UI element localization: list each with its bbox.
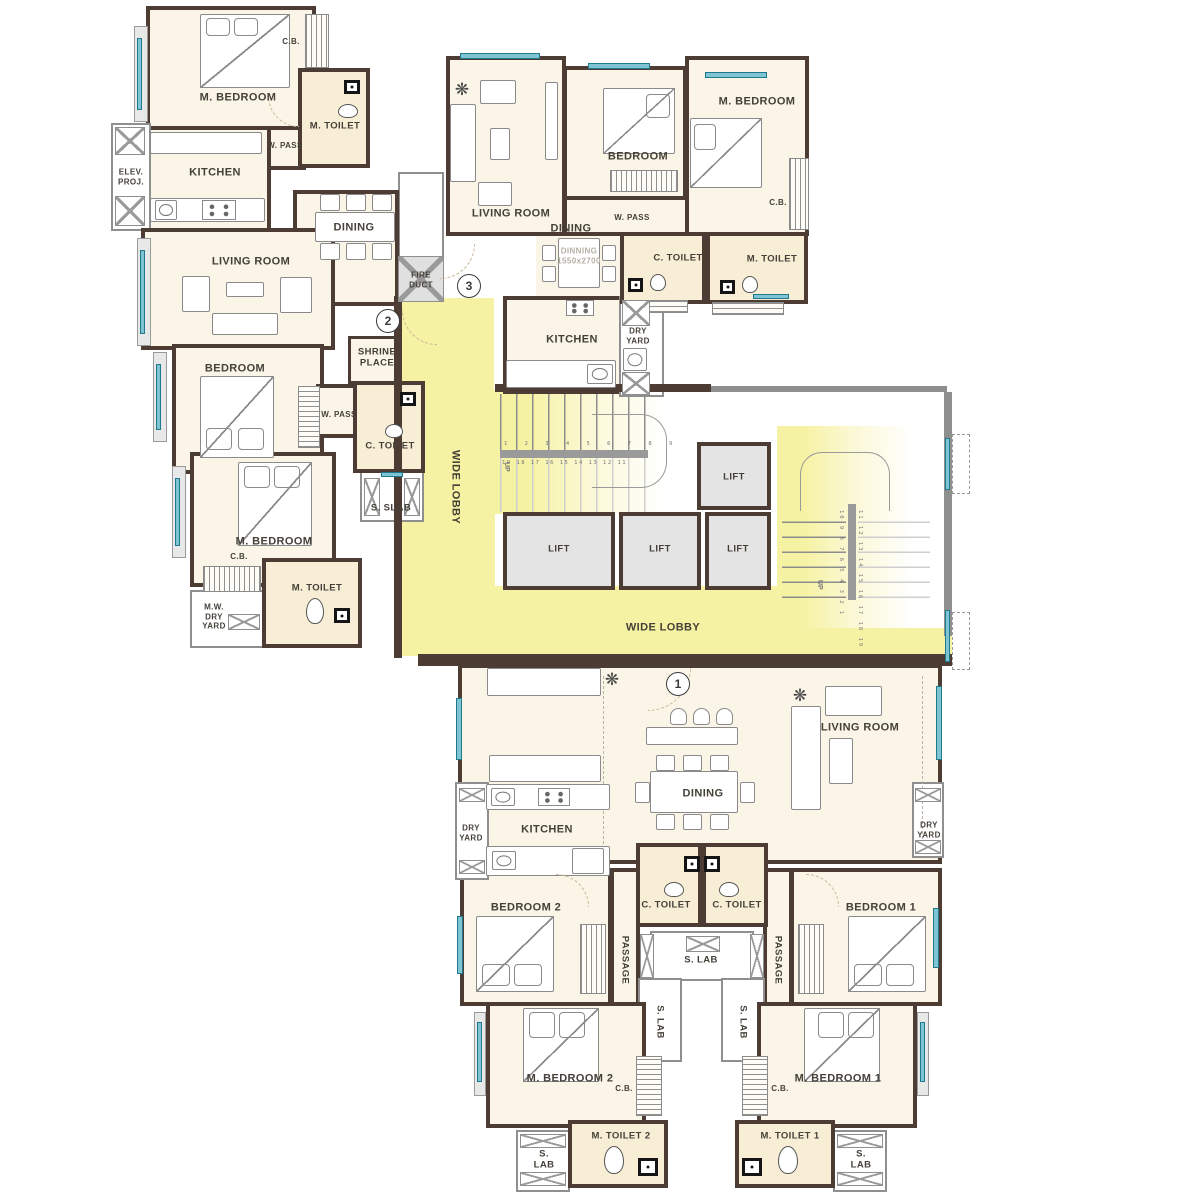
- u3-master-toilet-label: M. TOILET: [747, 253, 797, 264]
- stair-window-top: [945, 438, 950, 490]
- u1-window-right-1: [936, 686, 942, 760]
- u3-tv-unit: [545, 82, 558, 160]
- u1-dryyard-r-hatch-top: [915, 788, 941, 802]
- u2-dining-chair-1: [320, 194, 340, 211]
- entry-marker-3: 3: [457, 274, 481, 298]
- u1-mtoilet1-basin-icon: [742, 1158, 762, 1176]
- u3-stove-icon: [566, 300, 594, 316]
- lift-2-label: LIFT: [649, 543, 671, 554]
- u3-armchair-top: [480, 80, 516, 104]
- u1-bed-1-line: [848, 916, 926, 992]
- u1-mbed1-window: [920, 1022, 925, 1082]
- u1-sofa-1: [487, 668, 601, 696]
- u2-bed-master-line: [200, 14, 290, 88]
- u1-slab-center-hatch-l: [640, 934, 654, 978]
- lift-top-right-label: LIFT: [723, 471, 745, 482]
- u2-elev-proj-label: ELEV. PROJ.: [118, 167, 144, 186]
- u2-elev-hatch-top: [115, 127, 145, 155]
- u3-mtoilet-window: [753, 294, 789, 299]
- u1-dining-chair-1: [656, 755, 675, 771]
- u1-kitchen-sink-2: [492, 851, 516, 870]
- u3-armchair-bottom: [478, 182, 512, 206]
- u2-ctoilet-basin-icon: [400, 392, 416, 406]
- u2-master-toilet-label: M. TOILET: [310, 120, 360, 131]
- u3-window-mbedroom: [705, 72, 767, 78]
- u1-passage-right-label: PASSAGE: [772, 936, 783, 985]
- u2-sslab-window: [381, 472, 403, 477]
- u2-kitchen-label: KITCHEN: [189, 166, 241, 179]
- u1-master-bedroom-2-label: M. BEDROOM 2: [527, 1072, 614, 1085]
- u3-common-toilet-label: C. TOILET: [653, 252, 702, 263]
- u1-dryyard-l-hatch-bottom: [459, 860, 485, 874]
- u1-passage-left-label: PASSAGE: [619, 936, 630, 985]
- u1-dryyard-l-hatch-top: [459, 788, 485, 802]
- u1-bed-2-line: [476, 916, 554, 992]
- u1-dining-chair-6: [710, 814, 729, 830]
- u3-w-pass-label: W. PASS: [614, 213, 650, 223]
- u1-ctoilet-l-basin-icon: [684, 856, 700, 872]
- u2-mtoilet2-wc-icon: [306, 598, 324, 624]
- u1-s-lab-right-label: S. LAB: [737, 1005, 748, 1039]
- u1-s-lab-bottom-right-label: S. LAB: [851, 1149, 872, 1172]
- u1-bed-m1-line: [804, 1008, 880, 1082]
- u1-dry-yard-right-label: DRY YARD: [917, 820, 941, 839]
- u3-dining-chair-1: [542, 245, 556, 261]
- u1-s-lab-bottom-left-label: S. LAB: [534, 1149, 555, 1172]
- stair-up-label: UP: [503, 462, 510, 472]
- stair2-treads-right: [858, 508, 930, 598]
- u3-window-living: [460, 53, 540, 59]
- u1-window-left-2: [457, 916, 463, 974]
- duct-shaft: [398, 172, 444, 258]
- stair-numbers-bottom: 19 18 17 16 15 14 13 12 11: [502, 460, 627, 466]
- projection-box-top: [952, 434, 970, 494]
- u1-zone-divider-right: [922, 676, 924, 844]
- u1-dining-chair-8: [740, 782, 755, 803]
- u3-mtoilet-wc-icon: [742, 276, 758, 293]
- u2-window-4: [175, 478, 180, 546]
- lobby-bottom-wall: [418, 654, 952, 666]
- u3-bedroom-label: BEDROOM: [608, 150, 668, 163]
- u1-bedroom-2-label: BEDROOM 2: [491, 901, 561, 914]
- u1-mtoilet1-wc-icon: [778, 1146, 798, 1174]
- u3-dry-yard-label: DRY YARD: [626, 326, 650, 345]
- u2-sofa: [212, 313, 278, 335]
- u1-master-bedroom-1-label: M. BEDROOM 1: [795, 1072, 882, 1085]
- u3-common-toilet: [620, 232, 706, 304]
- u1-dryyard-r-hatch-bottom: [915, 840, 941, 854]
- u1-window-left-1: [456, 698, 462, 760]
- stair-top-wall-gray: [711, 386, 947, 392]
- u3-cb-label: C.B.: [769, 198, 787, 208]
- u1-dining-chair-3: [710, 755, 729, 771]
- u1-slab-bl-hatch-top: [520, 1134, 566, 1148]
- u2-living-room-label: LIVING ROOM: [212, 255, 290, 268]
- u1-ctoilet-l-wc-icon: [664, 882, 684, 897]
- u2-cb-label: C.B.: [282, 37, 300, 47]
- u1-window-right-2: [933, 908, 939, 968]
- wide-lobby-vertical-label: WIDE LOBBY: [448, 450, 461, 524]
- u3-ctoilet-wc-icon: [650, 274, 666, 291]
- u2-kitchen-sink-2: [155, 200, 177, 220]
- u2-mwdry-hatch: [228, 614, 260, 630]
- shrine-place-label: SHRINE PLACE: [358, 347, 396, 370]
- u2-dining-chair-3: [372, 194, 392, 211]
- u3-kitchen-sink: [587, 364, 613, 384]
- u2-s-slab-label: S. SLAB: [371, 502, 411, 513]
- u1-slab-center-hatch: [686, 936, 720, 952]
- u2-mw-dry-yard-label: M.W. DRY YARD: [202, 603, 226, 632]
- u1-mtoilet2-basin-icon: [638, 1158, 658, 1176]
- entry-marker-1: 1: [666, 672, 690, 696]
- u2-window-1: [137, 38, 142, 110]
- u3-master-bedroom-label: M. BEDROOM: [719, 95, 796, 108]
- u2-cb-closet: [305, 14, 329, 68]
- stair2-numbers-a: 10 9 8 7 6 5 4 3 2 1: [838, 510, 844, 616]
- stair2-treads-left: [782, 508, 846, 598]
- u1-kitchen-label: KITCHEN: [521, 823, 573, 836]
- lift-1-label: LIFT: [548, 543, 570, 554]
- u3-mtoilet-basin-icon: [720, 280, 735, 294]
- u1-stove-icon: [538, 788, 570, 806]
- u1-stool-2: [693, 708, 710, 725]
- u1-living-sofa-top: [825, 686, 882, 716]
- u3-living-room-label: LIVING ROOM: [472, 207, 550, 220]
- u1-dining-chair-5: [683, 814, 702, 830]
- u1-cb-right-label: C.B.: [771, 1084, 789, 1094]
- u2-window-2: [140, 250, 145, 334]
- u1-stool-1: [670, 708, 687, 725]
- u1-sofa-2: [489, 755, 601, 782]
- u2-mtoilet-wc-icon: [338, 104, 358, 118]
- u3-cb-closet: [789, 158, 809, 230]
- u2-w-pass-2-label: W. PASS: [321, 410, 357, 420]
- u3-window-bedroom: [588, 63, 650, 69]
- u2-coffee-table: [226, 282, 264, 297]
- u1-common-toilet-right-label: C. TOILET: [712, 899, 761, 910]
- u1-slab-br-hatch-top: [837, 1134, 883, 1148]
- u3-dining-label: DINING: [551, 222, 592, 235]
- u1-dining-label: DINING: [683, 787, 724, 800]
- u3-washer-icon: [623, 348, 647, 371]
- stair2-numbers-b: 11 12 13 14 15 16 17 18 19: [857, 510, 863, 648]
- u1-mtoilet2-wc-icon: [604, 1146, 624, 1174]
- u2-armchair-1: [182, 276, 210, 312]
- u2-mtoilet2-basin-icon: [334, 608, 350, 623]
- u1-dining-chair-2: [683, 755, 702, 771]
- u1-cb-right-closet: [742, 1056, 768, 1116]
- u1-bedroom1-wardrobe: [798, 924, 824, 994]
- u1-s-lab-center-label: S. LAB: [684, 954, 718, 965]
- u2-elev-hatch-bottom: [115, 196, 145, 226]
- stair-window-bottom: [945, 610, 950, 662]
- u3-dryyard-hatch-top: [622, 300, 650, 326]
- u2-dining-chair-2: [346, 194, 366, 211]
- u2-window-3: [156, 364, 161, 430]
- u2-dining-chair-4: [320, 243, 340, 260]
- u2-bedroom-label: BEDROOM: [205, 362, 265, 375]
- u1-bedroom-1-label: BEDROOM 1: [846, 901, 916, 914]
- u3-bedroom-wardrobe: [610, 170, 678, 192]
- u1-master-toilet-2-label: M. TOILET 2: [591, 1130, 650, 1141]
- wide-lobby-horizontal-label: WIDE LOBBY: [626, 621, 700, 634]
- u1-dry-yard-left-label: DRY YARD: [459, 823, 483, 842]
- u3-kitchen-label: KITCHEN: [546, 333, 598, 346]
- u1-slab-br-hatch-bottom: [837, 1172, 883, 1186]
- u3-coffee-table: [490, 128, 510, 160]
- u1-living-sofa-l: [791, 706, 821, 810]
- stair-railing: [592, 414, 667, 488]
- u2-master-bedroom-2-label: M. BEDROOM: [236, 535, 313, 548]
- u1-bedroom2-wardrobe: [580, 924, 606, 994]
- u2-armchair-2: [280, 277, 312, 313]
- u1-bed-m2-line: [523, 1008, 599, 1082]
- u1-stool-3: [716, 708, 733, 725]
- u3-dining-chair-4: [602, 266, 616, 282]
- u1-slab-center-hatch-r: [750, 934, 764, 978]
- u1-zone-divider-left: [603, 676, 605, 844]
- stair2-railing: [800, 452, 890, 511]
- u2-bed-3-line: [238, 462, 312, 546]
- u1-ctoilet-r-basin-icon: [704, 856, 720, 872]
- u3-bed-master-line: [690, 118, 762, 188]
- u1-living-room-label: LIVING ROOM: [821, 721, 899, 734]
- u3-dining-chair-2: [542, 266, 556, 282]
- u1-slab-bl-hatch-bottom: [520, 1172, 566, 1186]
- floor-plan: 1 2 3 4 5 6 7 8 9 19 18 17 16 15 14 13 1…: [0, 0, 1200, 1200]
- u2-master-toilet-2-label: M. TOILET: [292, 582, 342, 593]
- u3-bed-line: [603, 88, 675, 154]
- u1-bar-counter: [646, 727, 738, 745]
- u1-dining-chair-4: [656, 814, 675, 830]
- u3-mtoilet-shelf: [712, 302, 784, 315]
- u3-dining-size-label: DINNING 1550x2700: [557, 246, 601, 265]
- u2-ctoilet-wc-icon: [385, 424, 403, 438]
- u3-sofa: [450, 104, 476, 182]
- lift-3-label: LIFT: [727, 543, 749, 554]
- u1-cb-left-label: C.B.: [615, 1084, 633, 1094]
- u2-bed-2-line: [200, 376, 274, 458]
- u1-common-toilet-left-label: C. TOILET: [641, 899, 690, 910]
- u1-master-toilet-1-label: M. TOILET 1: [760, 1130, 819, 1141]
- stair-numbers-top: 1 2 3 4 5 6 7 8 9: [504, 441, 679, 447]
- u1-mbed2-window: [477, 1022, 482, 1082]
- u1-dining-chair-7: [635, 782, 650, 803]
- u1-plant-icon-1: [605, 670, 619, 690]
- u2-dining-label: DINING: [334, 221, 375, 234]
- u2-cb2-closet: [203, 566, 261, 592]
- u2-dining-chair-6: [372, 243, 392, 260]
- u2-cb2-label: C.B.: [230, 552, 248, 562]
- u2-w-pass-label: W. PASS: [267, 141, 303, 151]
- projection-box-bottom: [952, 612, 970, 670]
- u1-living-rug: [829, 738, 853, 784]
- u1-ctoilet-r-wc-icon: [719, 882, 739, 897]
- stair2-landing-bar: [848, 504, 856, 600]
- u2-master-bedroom-label: M. BEDROOM: [200, 91, 277, 104]
- u2-common-toilet-label: C. TOILET: [365, 440, 414, 451]
- u2-mtoilet-basin-icon: [344, 80, 360, 94]
- u1-plant-icon-2: [793, 686, 807, 706]
- u3-dining-chair-3: [602, 245, 616, 261]
- u3-dryyard-hatch-bottom: [622, 372, 650, 395]
- u2-kitchen-counter-top: [150, 132, 262, 154]
- stair2-up-label: UP: [816, 580, 823, 590]
- entry-marker-2: 2: [376, 309, 400, 333]
- core-right-wall: [944, 392, 952, 636]
- u3-ctoilet-basin-icon: [628, 278, 643, 292]
- u2-bedroom-wardrobe: [298, 386, 320, 448]
- u2-stove-icon: [202, 200, 236, 220]
- u2-dining-chair-5: [346, 243, 366, 260]
- u1-kitchen-sink-1: [491, 788, 515, 806]
- u3-plant-icon: [455, 80, 469, 100]
- fire-duct-label: FIRE DUCT: [409, 270, 433, 289]
- u1-cb-left-closet: [636, 1056, 662, 1116]
- u1-kitchen-box: [572, 848, 604, 874]
- u1-s-lab-left-label: S. LAB: [654, 1005, 665, 1039]
